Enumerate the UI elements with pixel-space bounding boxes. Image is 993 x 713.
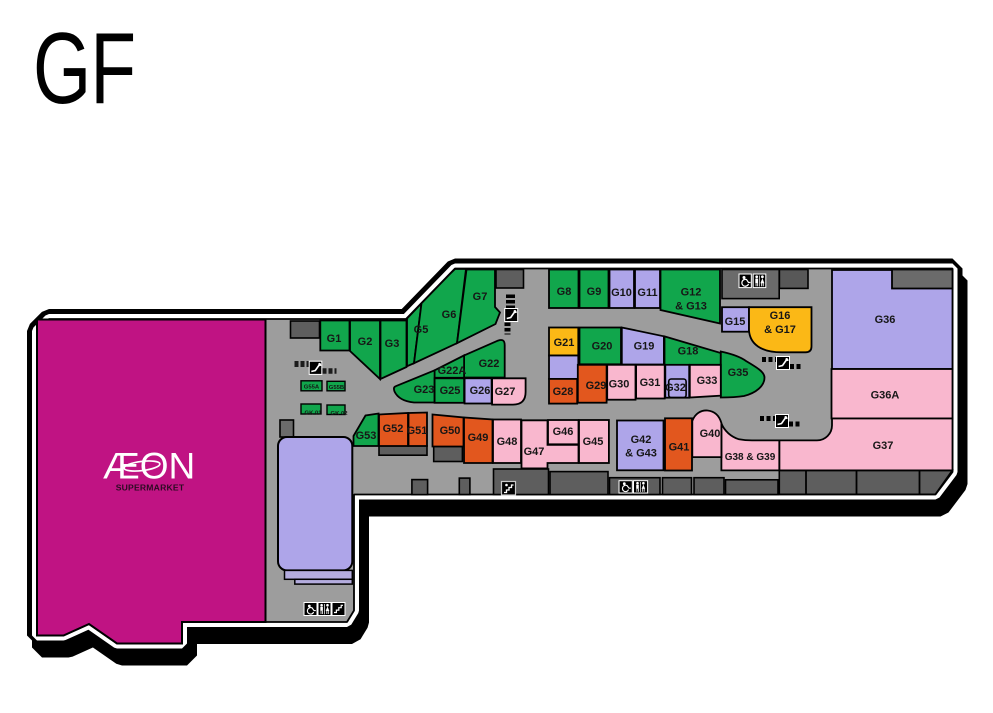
svg-text:G25: G25 [440,385,461,397]
svg-text:G9: G9 [587,286,602,298]
svg-text:G36: G36 [875,314,896,326]
svg-text:G31: G31 [640,377,661,389]
svg-text:G15: G15 [725,316,746,328]
svg-text:G3: G3 [385,338,400,350]
svg-text:G42: G42 [631,434,652,446]
svg-text:G1: G1 [327,333,342,345]
svg-text:SUPERMARKET: SUPERMARKET [116,483,185,493]
svg-text:GK 02: GK 02 [330,411,348,417]
svg-text:& G17: & G17 [764,324,796,336]
svg-text:G8: G8 [557,286,572,298]
svg-text:& G43: & G43 [625,448,657,460]
svg-text:G29: G29 [586,380,607,392]
svg-text:G55A: G55A [304,385,320,391]
svg-text:G33: G33 [697,375,718,387]
svg-text:G45: G45 [583,436,604,448]
svg-text:G37: G37 [873,440,894,452]
svg-text:GK 01: GK 01 [304,410,322,416]
svg-text:G52: G52 [383,423,404,435]
svg-text:G5: G5 [414,324,429,336]
svg-text:G23: G23 [414,384,435,396]
svg-text:G30: G30 [609,379,630,391]
svg-text:G51: G51 [407,425,428,437]
svg-text:G35: G35 [728,367,749,379]
svg-text:G36A: G36A [871,390,900,402]
svg-text:G48: G48 [497,436,518,448]
svg-text:G22: G22 [479,358,500,370]
svg-text:G10: G10 [611,287,632,299]
svg-text:G7: G7 [473,291,488,303]
svg-text:ÆON: ÆON [103,446,196,487]
svg-text:G47: G47 [524,446,545,458]
svg-text:G46: G46 [553,426,574,438]
svg-text:G41: G41 [669,442,690,454]
svg-text:G49: G49 [468,432,489,444]
svg-text:G26: G26 [470,385,491,397]
svg-text:G2: G2 [358,336,373,348]
svg-text:G53: G53 [356,430,377,442]
svg-text:G28: G28 [553,386,574,398]
svg-text:G18: G18 [678,346,699,358]
svg-text:G22A: G22A [438,365,467,377]
svg-text:G19: G19 [634,341,655,353]
svg-text:G40: G40 [700,428,721,440]
svg-text:G11: G11 [637,287,657,299]
svg-text:& G13: & G13 [675,301,707,313]
svg-text:G27: G27 [495,386,516,398]
svg-text:G32: G32 [665,382,686,394]
svg-text:G50: G50 [440,425,461,437]
svg-text:G6: G6 [442,309,457,321]
svg-text:G21: G21 [554,337,575,349]
svg-text:G12: G12 [681,287,702,299]
svg-text:G55B: G55B [329,385,344,391]
svg-text:G20: G20 [592,341,613,353]
svg-text:G38 & G39: G38 & G39 [725,452,776,463]
svg-text:G16: G16 [770,310,791,322]
svg-text:GF: GF [33,12,135,125]
